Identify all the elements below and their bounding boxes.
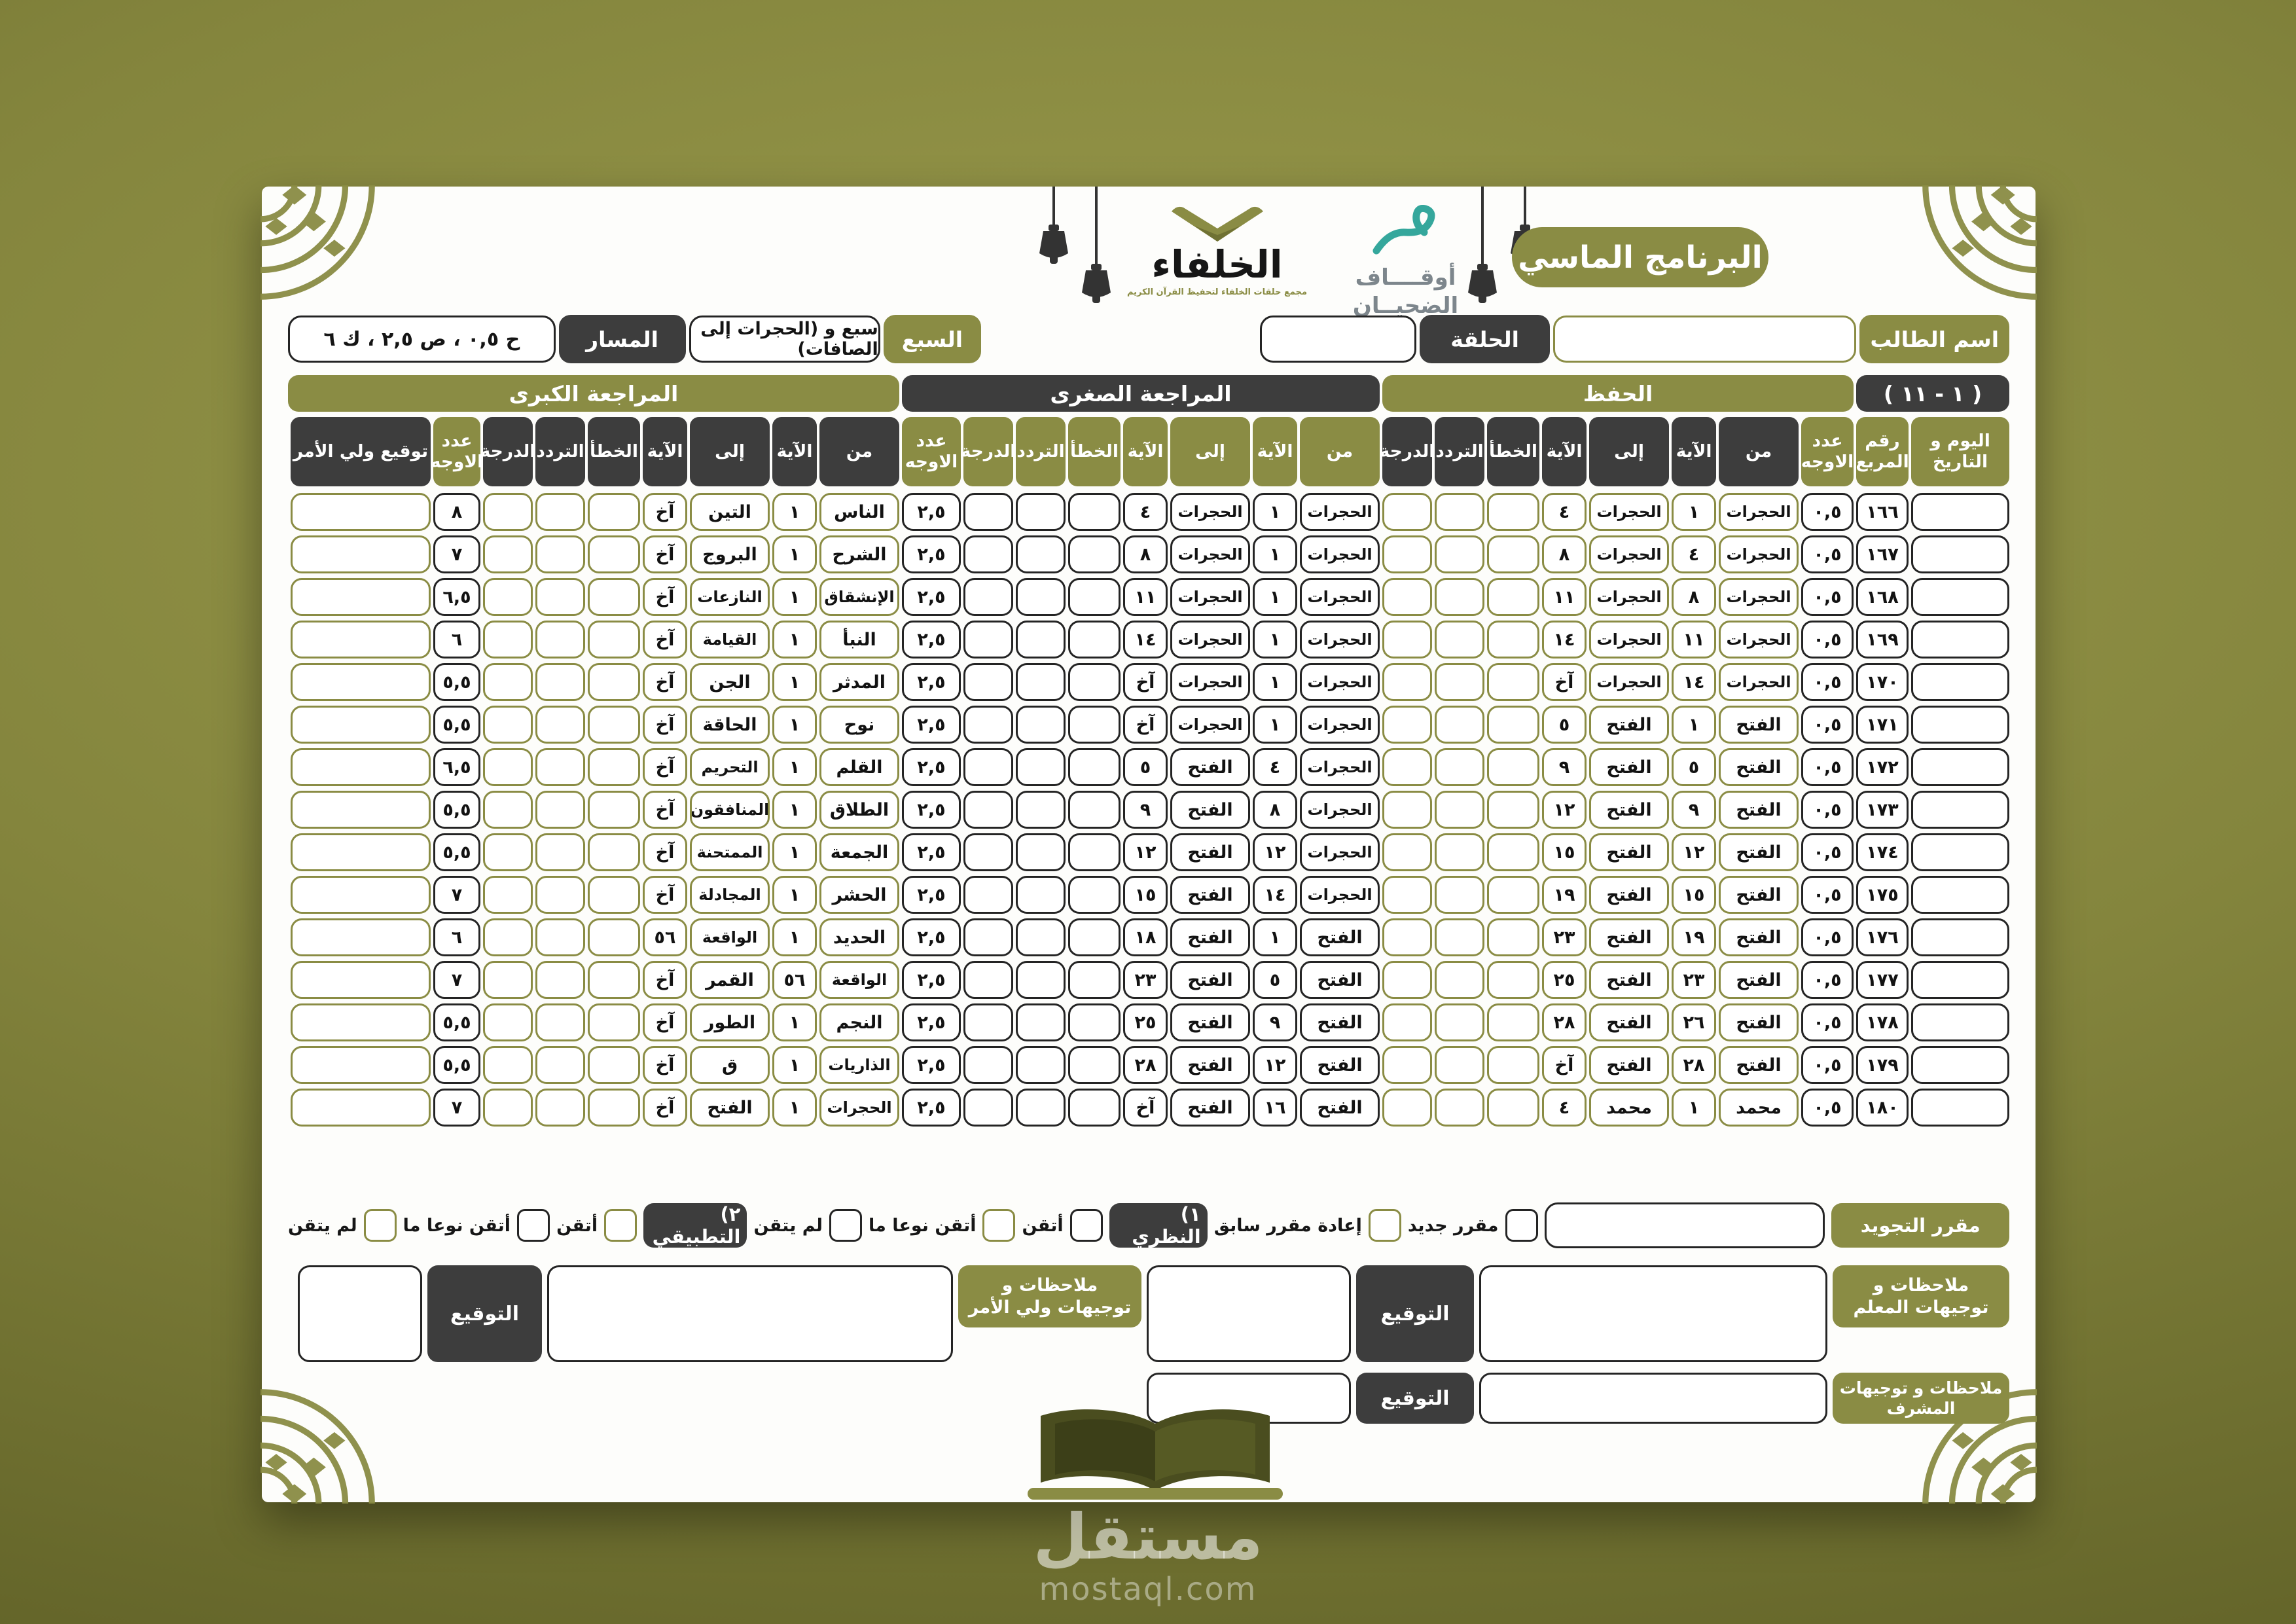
cell-gtv-row6: آخ — [643, 706, 687, 744]
cell-ge-row14[interactable] — [588, 1046, 640, 1084]
cell-ht-row8: الفتح — [1589, 791, 1669, 829]
cell-ge-row11[interactable] — [588, 918, 640, 956]
cell-ht-row10: الفتح — [1589, 876, 1669, 914]
cell-mr-row15[interactable] — [1016, 1089, 1066, 1127]
cell-gt-row5: الجن — [690, 663, 770, 701]
cell-gt-row6: الحاقة — [690, 706, 770, 744]
cell-day-row3[interactable] — [1911, 578, 2009, 616]
checkbox-label: أتقن — [556, 1216, 598, 1236]
cell-gd-row15[interactable] — [483, 1089, 533, 1127]
cell-mf-row6: الحجرات — [1300, 706, 1380, 744]
cell-mfv-row12: ٥ — [1253, 961, 1297, 999]
cell-gr-row14[interactable] — [535, 1046, 585, 1084]
cell-hd-row14[interactable] — [1382, 1046, 1432, 1084]
tajweed-label: مقرر التجويد — [1831, 1203, 2009, 1248]
cell-me-row2[interactable] — [1068, 535, 1121, 573]
cell-md-row7[interactable] — [963, 748, 1013, 786]
cell-htv-row9: ١٥ — [1542, 833, 1587, 871]
cell-hd-row9[interactable] — [1382, 833, 1432, 871]
cell-ge-row13[interactable] — [588, 1003, 640, 1041]
cell-sig-row10[interactable] — [291, 876, 431, 914]
cell-hd-row12[interactable] — [1382, 961, 1432, 999]
cell-gp-row10: ٧ — [433, 876, 480, 914]
cell-mr-row8[interactable] — [1016, 791, 1066, 829]
teacher-signature-box[interactable] — [1147, 1265, 1351, 1362]
cell-sig-row6[interactable] — [291, 706, 431, 744]
cell-day-row6[interactable] — [1911, 706, 2009, 744]
supervisor-signature-label: التوقيع — [1356, 1373, 1474, 1424]
cell-day-row10[interactable] — [1911, 876, 2009, 914]
cell-ge-row6[interactable] — [588, 706, 640, 744]
cell-gd-row5[interactable] — [483, 663, 533, 701]
cell-gr-row11[interactable] — [535, 918, 585, 956]
cell-he-row9[interactable] — [1487, 833, 1539, 871]
cell-gr-row3[interactable] — [535, 578, 585, 616]
cell-hp-row15: ٠,٥ — [1801, 1089, 1854, 1127]
table-row: ١٧٤٠,٥الفتح١٢الفتح١٥الحجرات١٢الفتح١٢٢,٥ا… — [288, 833, 2009, 871]
cell-hd-row7[interactable] — [1382, 748, 1432, 786]
cell-hr-row11[interactable] — [1435, 918, 1484, 956]
cell-hr-row8[interactable] — [1435, 791, 1484, 829]
cell-ge-row9[interactable] — [588, 833, 640, 871]
column-header-ht: إلى — [1589, 417, 1669, 486]
khulafa-tagline: مجمع حلقات الخلفاء لتحفيظ القرآن الكريم — [1124, 287, 1310, 297]
cell-mr-row13[interactable] — [1016, 1003, 1066, 1041]
cell-gp-row13: ٥,٥ — [433, 1003, 480, 1041]
checkbox-label: إعادة مقرر سابق — [1214, 1216, 1362, 1236]
page-background: { "colors":{"olive":"#8a8c44","dark":"#3… — [0, 0, 2296, 1624]
checkbox-label: أتقن — [1022, 1216, 1063, 1236]
cell-gr-row1[interactable] — [535, 493, 585, 531]
cell-mr-row11[interactable] — [1016, 918, 1066, 956]
cell-he-row8[interactable] — [1487, 791, 1539, 829]
cell-gt-row7: التحريم — [690, 748, 770, 786]
checkbox-practical[interactable] — [517, 1209, 550, 1242]
cell-ht-row3: الحجرات — [1589, 578, 1669, 616]
cell-gt-row2: البروج — [690, 535, 770, 573]
cell-md-row3[interactable] — [963, 578, 1013, 616]
cell-md-row13[interactable] — [963, 1003, 1013, 1041]
cell-ge-row2[interactable] — [588, 535, 640, 573]
cell-me-row3[interactable] — [1068, 578, 1121, 616]
cell-sig-row1[interactable] — [291, 493, 431, 531]
cell-no-row6: ١٧١ — [1856, 706, 1909, 744]
cell-ge-row15[interactable] — [588, 1089, 640, 1127]
cell-gd-row8[interactable] — [483, 791, 533, 829]
cell-mr-row10[interactable] — [1016, 876, 1066, 914]
cell-ht-row15: محمد — [1589, 1089, 1669, 1127]
cell-hd-row5[interactable] — [1382, 663, 1432, 701]
cell-gt-row10: المجادلة — [690, 876, 770, 914]
cell-he-row5[interactable] — [1487, 663, 1539, 701]
cell-gr-row5[interactable] — [535, 663, 585, 701]
cell-gfv-row1: ١ — [772, 493, 817, 531]
cell-gtv-row11: ٥٦ — [643, 918, 687, 956]
cell-ge-row3[interactable] — [588, 578, 640, 616]
cell-hr-row9[interactable] — [1435, 833, 1484, 871]
cell-mr-row4[interactable] — [1016, 621, 1066, 659]
cell-htv-row15: ٤ — [1542, 1089, 1587, 1127]
table-row: ١٦٩٠,٥الحجرات١١الحجرات١٤الحجرات١الحجرات١… — [288, 621, 2009, 659]
cell-hr-row2[interactable] — [1435, 535, 1484, 573]
cell-hr-row13[interactable] — [1435, 1003, 1484, 1041]
cell-md-row11[interactable] — [963, 918, 1013, 956]
cell-gd-row4[interactable] — [483, 621, 533, 659]
checkbox-tajweed[interactable] — [1505, 1209, 1538, 1242]
cell-md-row12[interactable] — [963, 961, 1013, 999]
cell-gr-row7[interactable] — [535, 748, 585, 786]
cell-gr-row8[interactable] — [535, 791, 585, 829]
cell-mr-row3[interactable] — [1016, 578, 1066, 616]
cell-sig-row12[interactable] — [291, 961, 431, 999]
cell-gd-row2[interactable] — [483, 535, 533, 573]
cell-mtv-row7: ٥ — [1123, 748, 1168, 786]
cell-day-row2[interactable] — [1911, 535, 2009, 573]
cell-day-row7[interactable] — [1911, 748, 2009, 786]
cell-mp-row9: ٢,٥ — [902, 833, 961, 871]
cell-md-row2[interactable] — [963, 535, 1013, 573]
table-row: ١٧١٠,٥الفتح١الفتح٥الحجرات١الحجراتآخ٢,٥نو… — [288, 706, 2009, 744]
cell-ge-row4[interactable] — [588, 621, 640, 659]
cell-hd-row10[interactable] — [1382, 876, 1432, 914]
cell-md-row1[interactable] — [963, 493, 1013, 531]
cell-ht-row2: الحجرات — [1589, 535, 1669, 573]
cell-gp-row7: ٦,٥ — [433, 748, 480, 786]
cell-hd-row6[interactable] — [1382, 706, 1432, 744]
cell-gf-row13: النجم — [819, 1003, 899, 1041]
cell-me-row14[interactable] — [1068, 1046, 1121, 1084]
cell-gr-row6[interactable] — [535, 706, 585, 744]
cell-hp-row13: ٠,٥ — [1801, 1003, 1854, 1041]
cell-mt-row7: الفتح — [1170, 748, 1250, 786]
cell-gfv-row14: ١ — [772, 1046, 817, 1084]
cell-ge-row12[interactable] — [588, 961, 640, 999]
cell-mr-row1[interactable] — [1016, 493, 1066, 531]
checkbox-practical[interactable] — [364, 1209, 397, 1242]
fields-row: اسم الطالب الحلقة السبع سبع و (الحجرات إ… — [288, 315, 2009, 363]
cell-sig-row8[interactable] — [291, 791, 431, 829]
cell-gd-row3[interactable] — [483, 578, 533, 616]
awqaf-logo: أوقــــاف الضحيــان — [1335, 205, 1476, 319]
cell-hp-row7: ٠,٥ — [1801, 748, 1854, 786]
checkbox-tajweed[interactable] — [1369, 1209, 1401, 1242]
open-book-icon — [1014, 1404, 1296, 1502]
student-name-label: اسم الطالب — [1859, 315, 2009, 363]
cell-gf-row7: القلم — [819, 748, 899, 786]
cell-he-row14[interactable] — [1487, 1046, 1539, 1084]
cell-htv-row13: ٢٨ — [1542, 1003, 1587, 1041]
cell-hr-row1[interactable] — [1435, 493, 1484, 531]
cell-mt-row2: الحجرات — [1170, 535, 1250, 573]
table-row: ١٧٠٠,٥الحجرات١٤الحجراتآخالحجرات١الحجراتآ… — [288, 663, 2009, 701]
cell-mtv-row9: ١٢ — [1123, 833, 1168, 871]
cell-day-row11[interactable] — [1911, 918, 2009, 956]
cell-me-row1[interactable] — [1068, 493, 1121, 531]
cell-mt-row14: الفتح — [1170, 1046, 1250, 1084]
cell-mfv-row15: ١٦ — [1253, 1089, 1297, 1127]
cell-gt-row11: الواقعة — [690, 918, 770, 956]
corner-ornament-icon — [1916, 185, 2037, 306]
cell-gf-row9: الجمعة — [819, 833, 899, 871]
cell-ge-row1[interactable] — [588, 493, 640, 531]
column-header-mp: عدد الاوجه — [902, 417, 961, 486]
khulafa-logo: الخلفاء مجمع حلقات الخلفاء لتحفيظ القرآن… — [1124, 200, 1310, 297]
cell-hd-row2[interactable] — [1382, 535, 1432, 573]
cell-gr-row12[interactable] — [535, 961, 585, 999]
cell-gr-row9[interactable] — [535, 833, 585, 871]
cell-mr-row12[interactable] — [1016, 961, 1066, 999]
cell-gfv-row10: ١ — [772, 876, 817, 914]
cell-mtv-row12: ٢٣ — [1123, 961, 1168, 999]
cell-gd-row11[interactable] — [483, 918, 533, 956]
guardian-signature-box[interactable] — [298, 1265, 422, 1362]
cell-no-row2: ١٦٧ — [1856, 535, 1909, 573]
checkbox-theory[interactable] — [829, 1209, 862, 1242]
cell-hr-row5[interactable] — [1435, 663, 1484, 701]
cell-mfv-row6: ١ — [1253, 706, 1297, 744]
cell-gd-row10[interactable] — [483, 876, 533, 914]
cell-mtv-row10: ١٥ — [1123, 876, 1168, 914]
cell-me-row11[interactable] — [1068, 918, 1121, 956]
cell-gfv-row7: ١ — [772, 748, 817, 786]
teacher-notes-box[interactable] — [1479, 1265, 1827, 1362]
cell-sig-row13[interactable] — [291, 1003, 431, 1041]
cell-me-row5[interactable] — [1068, 663, 1121, 701]
cell-gd-row6[interactable] — [483, 706, 533, 744]
cell-sig-row4[interactable] — [291, 621, 431, 659]
cell-day-row14[interactable] — [1911, 1046, 2009, 1084]
teacher-signature-label: التوقيع — [1356, 1265, 1474, 1362]
cell-mf-row14: الفتح — [1300, 1046, 1380, 1084]
cell-he-row6[interactable] — [1487, 706, 1539, 744]
cell-sig-row9[interactable] — [291, 833, 431, 871]
column-header-sig: توقيع ولي الأمر — [291, 417, 431, 486]
student-name-input[interactable] — [1553, 316, 1856, 363]
cell-gfv-row6: ١ — [772, 706, 817, 744]
cell-gr-row10[interactable] — [535, 876, 585, 914]
cell-gd-row14[interactable] — [483, 1046, 533, 1084]
cell-mr-row9[interactable] — [1016, 833, 1066, 871]
cell-htv-row14: آخ — [1542, 1046, 1587, 1084]
cell-md-row5[interactable] — [963, 663, 1013, 701]
guardian-notes-label: ملاحظات و توجيهات ولي الأمر — [958, 1265, 1141, 1327]
cell-day-row1[interactable] — [1911, 493, 2009, 531]
cell-mt-row3: الحجرات — [1170, 578, 1250, 616]
cell-hr-row14[interactable] — [1435, 1046, 1484, 1084]
cell-md-row14[interactable] — [963, 1046, 1013, 1084]
cell-he-row1[interactable] — [1487, 493, 1539, 531]
cell-mr-row6[interactable] — [1016, 706, 1066, 744]
cell-hfv-row15: ١ — [1672, 1089, 1716, 1127]
cell-gp-row3: ٦,٥ — [433, 578, 480, 616]
cell-me-row9[interactable] — [1068, 833, 1121, 871]
tajweed-input[interactable] — [1545, 1202, 1825, 1248]
cell-mp-row4: ٢,٥ — [902, 621, 961, 659]
cell-htv-row4: ١٤ — [1542, 621, 1587, 659]
cell-hr-row6[interactable] — [1435, 706, 1484, 744]
cell-me-row6[interactable] — [1068, 706, 1121, 744]
cell-md-row8[interactable] — [963, 791, 1013, 829]
cell-day-row13[interactable] — [1911, 1003, 2009, 1041]
cell-gd-row13[interactable] — [483, 1003, 533, 1041]
cell-gr-row15[interactable] — [535, 1089, 585, 1127]
cell-mtv-row8: ٩ — [1123, 791, 1168, 829]
cell-mt-row10: الفتح — [1170, 876, 1250, 914]
cell-mr-row14[interactable] — [1016, 1046, 1066, 1084]
cell-sig-row11[interactable] — [291, 918, 431, 956]
cell-me-row12[interactable] — [1068, 961, 1121, 999]
cell-ge-row8[interactable] — [588, 791, 640, 829]
cell-mt-row9: الفتح — [1170, 833, 1250, 871]
checkbox-label: أتقن نوعا ما — [869, 1216, 976, 1236]
cell-me-row4[interactable] — [1068, 621, 1121, 659]
cell-day-row8[interactable] — [1911, 791, 2009, 829]
cell-sig-row15[interactable] — [291, 1089, 431, 1127]
column-header-hf: من — [1719, 417, 1799, 486]
cell-md-row4[interactable] — [963, 621, 1013, 659]
cell-sig-row5[interactable] — [291, 663, 431, 701]
cell-me-row7[interactable] — [1068, 748, 1121, 786]
cell-hd-row11[interactable] — [1382, 918, 1432, 956]
cell-md-row10[interactable] — [963, 876, 1013, 914]
cell-ht-row1: الحجرات — [1589, 493, 1669, 531]
awqaf-line1: أوقــــاف — [1355, 264, 1456, 291]
cell-md-row15[interactable] — [963, 1089, 1013, 1127]
cell-day-row9[interactable] — [1911, 833, 2009, 871]
cell-mp-row5: ٢,٥ — [902, 663, 961, 701]
cell-hd-row4[interactable] — [1382, 621, 1432, 659]
cell-me-row15[interactable] — [1068, 1089, 1121, 1127]
cell-hr-row12[interactable] — [1435, 961, 1484, 999]
cell-ht-row9: الفتح — [1589, 833, 1669, 871]
cell-hr-row15[interactable] — [1435, 1089, 1484, 1127]
theory-options: أتقنأتقن نوعا مالم يتقن — [753, 1209, 1102, 1242]
cell-md-row6[interactable] — [963, 706, 1013, 744]
column-header-gfv: الآية — [772, 417, 817, 486]
cell-hr-row3[interactable] — [1435, 578, 1484, 616]
cell-ht-row6: الفتح — [1589, 706, 1669, 744]
cell-hfv-row5: ١٤ — [1672, 663, 1716, 701]
cell-sig-row2[interactable] — [291, 535, 431, 573]
cell-day-row15[interactable] — [1911, 1089, 2009, 1127]
cell-mfv-row14: ١٢ — [1253, 1046, 1297, 1084]
cell-day-row5[interactable] — [1911, 663, 2009, 701]
column-header-hr: التردد — [1435, 417, 1484, 486]
cell-no-row1: ١٦٦ — [1856, 493, 1909, 531]
cell-sig-row14[interactable] — [291, 1046, 431, 1084]
cell-ge-row5[interactable] — [588, 663, 640, 701]
cell-hp-row1: ٠,٥ — [1801, 493, 1854, 531]
cell-gr-row13[interactable] — [535, 1003, 585, 1041]
cell-mp-row8: ٢,٥ — [902, 791, 961, 829]
cell-hr-row4[interactable] — [1435, 621, 1484, 659]
table-row: ١٨٠٠,٥محمد١محمد٤الفتح١٦الفتحآخ٢,٥الحجرات… — [288, 1089, 2009, 1127]
checkbox-practical[interactable] — [604, 1209, 637, 1242]
supervisor-notes-box[interactable] — [1479, 1373, 1827, 1424]
cell-hp-row6: ٠,٥ — [1801, 706, 1854, 744]
cell-gtv-row3: آخ — [643, 578, 687, 616]
cell-mp-row13: ٢,٥ — [902, 1003, 961, 1041]
cell-he-row7[interactable] — [1487, 748, 1539, 786]
column-header-mr: التردد — [1016, 417, 1066, 486]
cell-ge-row10[interactable] — [588, 876, 640, 914]
checkbox-theory[interactable] — [982, 1209, 1015, 1242]
cell-he-row2[interactable] — [1487, 535, 1539, 573]
cell-me-row8[interactable] — [1068, 791, 1121, 829]
table-row: ١٧٧٠,٥الفتح٢٣الفتح٢٥الفتح٥الفتح٢٣٢,٥الوا… — [288, 961, 2009, 999]
cell-he-row15[interactable] — [1487, 1089, 1539, 1127]
cell-gt-row14: ق — [690, 1046, 770, 1084]
cell-mt-row15: الفتح — [1170, 1089, 1250, 1127]
cell-sig-row3[interactable] — [291, 578, 431, 616]
cell-hd-row1[interactable] — [1382, 493, 1432, 531]
cell-md-row9[interactable] — [963, 833, 1013, 871]
cell-hf-row11: الفتح — [1719, 918, 1799, 956]
cell-gd-row12[interactable] — [483, 961, 533, 999]
cell-gtv-row8: آخ — [643, 791, 687, 829]
cell-hr-row7[interactable] — [1435, 748, 1484, 786]
watermark-arabic: مستقل — [1033, 1506, 1263, 1568]
cell-me-row10[interactable] — [1068, 876, 1121, 914]
watermark: مستقل mostaql.com — [1033, 1506, 1263, 1608]
range-badge: ( ١ - ١١ ) — [1856, 375, 2009, 412]
cell-day-row12[interactable] — [1911, 961, 2009, 999]
cell-ge-row7[interactable] — [588, 748, 640, 786]
cell-mfv-row10: ١٤ — [1253, 876, 1297, 914]
cell-he-row12[interactable] — [1487, 961, 1539, 999]
table-row: ١٧٢٠,٥الفتح٥الفتح٩الحجرات٤الفتح٥٢,٥القلم… — [288, 748, 2009, 786]
cell-hd-row3[interactable] — [1382, 578, 1432, 616]
checkbox-theory[interactable] — [1070, 1209, 1103, 1242]
cell-mr-row5[interactable] — [1016, 663, 1066, 701]
cell-he-row11[interactable] — [1487, 918, 1539, 956]
cell-hfv-row11: ١٩ — [1672, 918, 1716, 956]
cell-mr-row7[interactable] — [1016, 748, 1066, 786]
cell-gtv-row2: آخ — [643, 535, 687, 573]
cell-he-row3[interactable] — [1487, 578, 1539, 616]
cell-gd-row9[interactable] — [483, 833, 533, 871]
checkbox-label: مقرر جديد — [1408, 1216, 1499, 1236]
cell-gd-row7[interactable] — [483, 748, 533, 786]
cell-hfv-row10: ١٥ — [1672, 876, 1716, 914]
halaqa-input[interactable] — [1260, 316, 1417, 363]
cell-hfv-row4: ١١ — [1672, 621, 1716, 659]
cell-hf-row3: الحجرات — [1719, 578, 1799, 616]
cell-hr-row10[interactable] — [1435, 876, 1484, 914]
cell-gt-row13: الطور — [690, 1003, 770, 1041]
cell-gp-row6: ٥,٥ — [433, 706, 480, 744]
cell-he-row4[interactable] — [1487, 621, 1539, 659]
cell-day-row4[interactable] — [1911, 621, 2009, 659]
cell-sig-row7[interactable] — [291, 748, 431, 786]
tajweed-options: مقرر جديدإعادة مقرر سابق — [1214, 1209, 1538, 1242]
cell-gr-row4[interactable] — [535, 621, 585, 659]
cell-gfv-row4: ١ — [772, 621, 817, 659]
column-header-gtv: الآية — [643, 417, 687, 486]
cell-hd-row15[interactable] — [1382, 1089, 1432, 1127]
cell-mf-row1: الحجرات — [1300, 493, 1380, 531]
cell-gd-row1[interactable] — [483, 493, 533, 531]
cell-me-row13[interactable] — [1068, 1003, 1121, 1041]
cell-he-row10[interactable] — [1487, 876, 1539, 914]
cell-hd-row8[interactable] — [1382, 791, 1432, 829]
cell-gr-row2[interactable] — [535, 535, 585, 573]
cell-he-row13[interactable] — [1487, 1003, 1539, 1041]
cell-hd-row13[interactable] — [1382, 1003, 1432, 1041]
cell-hp-row8: ٠,٥ — [1801, 791, 1854, 829]
cell-mr-row2[interactable] — [1016, 535, 1066, 573]
guardian-notes-box[interactable] — [547, 1265, 953, 1362]
